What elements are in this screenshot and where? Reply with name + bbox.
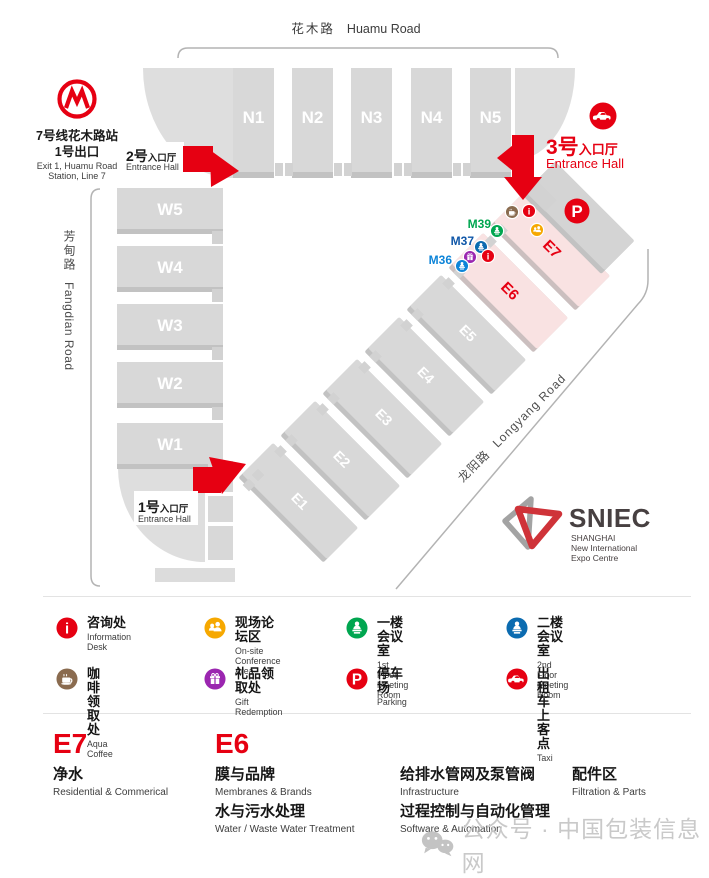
longyang-road-label: 龙阳路Longyang Road <box>454 370 568 484</box>
legend-item-parking: 停车场Parking <box>345 667 407 707</box>
legend-item-gift: 礼品领取处Gift Redemption <box>203 667 282 717</box>
section-e6-code: E6 <box>215 728 249 760</box>
legend-item-taxi: 出租车上客点Taxi <box>505 667 553 763</box>
metro-line2-cn: 1号出口 <box>55 144 99 159</box>
sniec-sub2: New International <box>571 543 637 553</box>
huamu-road-line <box>178 48 558 58</box>
section-e7-code: E7 <box>53 728 87 760</box>
parking-icon <box>345 667 369 691</box>
gift-icon <box>203 667 227 691</box>
gate-m37-label: M37 <box>451 234 475 248</box>
watermark-text: 公众号 · 中国包装信息网 <box>462 810 709 878</box>
conference-icon <box>203 616 227 640</box>
fangdian-road-line <box>91 189 100 586</box>
huamu-road-label: 花木路Huamu Road <box>291 21 420 36</box>
svg-text:N3: N3 <box>361 108 383 127</box>
taxi-icon <box>505 667 529 691</box>
gate-m36-label: M36 <box>429 253 453 267</box>
legend-cn: 出租车上客点 <box>537 667 553 751</box>
svg-text:W1: W1 <box>157 435 183 454</box>
metro-line1-en: Exit 1, Huamu Road <box>37 161 118 171</box>
svg-text:N1: N1 <box>243 108 265 127</box>
coffee-mini-icon <box>505 205 518 218</box>
fangdian-road-label: 芳甸路Fangdian Road <box>61 230 78 380</box>
entrance3-label-en: Entrance Hall <box>546 156 624 171</box>
legend-cn: 停车场 <box>377 667 407 695</box>
information-mini-icon <box>522 204 535 217</box>
svg-text:N2: N2 <box>302 108 324 127</box>
hall-w4: W4 <box>117 246 223 292</box>
legend-en: Aqua Coffee <box>87 739 113 759</box>
legend-item-information: 咨询处Information Desk <box>55 616 131 652</box>
category-cn: 膜与品牌 <box>215 763 312 784</box>
watermark: 公众号 · 中国包装信息网 <box>420 810 709 878</box>
legend-en: Taxi <box>537 753 553 763</box>
gate-m39-label: M39 <box>468 217 492 231</box>
entrance2-label-en: Entrance Hall <box>126 162 179 172</box>
fangdian-en: Fangdian Road <box>62 282 76 371</box>
hall-n1: N1 <box>233 68 274 178</box>
hall-n2: N2 <box>292 68 333 178</box>
sniec-sub3: Expo Centre <box>571 553 619 563</box>
category-en: Residential & Commerical <box>53 787 168 798</box>
category-cn: 净水 <box>53 763 168 784</box>
conference-mini-icon <box>530 223 543 236</box>
meeting-2f-icon <box>505 616 529 640</box>
svg-text:W5: W5 <box>157 200 183 219</box>
sniec-logo: SNIEC SHANGHAI New International Expo Ce… <box>505 499 651 563</box>
section-e6-item-2: 水与污水处理 Water / Waste Water Treatment <box>215 800 354 835</box>
section-infrastructure: 给排水管网及泵管阀 Infrastructure <box>400 763 535 798</box>
meeting-1f-icon <box>345 616 369 640</box>
fangdian-cn: 芳甸路 <box>62 230 76 272</box>
wechat-icon <box>420 828 456 860</box>
legend-cn: 礼品领取处 <box>235 667 282 695</box>
category-en: Water / Waste Water Treatment <box>215 824 354 835</box>
legend-cn: 一楼会议室 <box>377 616 408 658</box>
information-icon <box>55 616 79 640</box>
information-mini-icon-2 <box>481 249 494 262</box>
metro-station: 7号线花木路站 1号出口 Exit 1, Huamu Road Station,… <box>36 82 118 182</box>
divider-top <box>43 596 691 597</box>
hall-w2: W2 <box>117 362 223 408</box>
category-en: Membranes & Brands <box>215 787 312 798</box>
parking-letter: P <box>571 202 582 221</box>
metro-line1-cn: 7号线花木路站 <box>36 128 118 143</box>
entrance1-label-en: Entrance Hall <box>138 514 191 524</box>
legend-en: Information Desk <box>87 632 131 652</box>
venue-map: i P <box>0 0 709 600</box>
legend-cn: 二楼会议室 <box>537 616 568 658</box>
svg-text:N4: N4 <box>421 108 443 127</box>
taxi-badge <box>590 103 617 130</box>
hall-n3: N3 <box>351 68 392 178</box>
legend-en: Parking <box>377 697 407 707</box>
metro-line2-en: Station, Line 7 <box>48 171 106 181</box>
south-structure <box>155 568 235 582</box>
hall-w5: W5 <box>117 188 223 234</box>
svg-text:W2: W2 <box>157 374 183 393</box>
hall-n4: N4 <box>411 68 452 178</box>
divider-bottom <box>43 713 691 714</box>
coffee-icon <box>55 667 79 691</box>
legend-cn: 现场论坛区 <box>235 616 280 644</box>
gate-m36-icon <box>455 259 468 272</box>
svg-text:W3: W3 <box>157 316 183 335</box>
category-cn: 配件区 <box>572 763 646 784</box>
category-en: Filtration & Parts <box>572 787 646 798</box>
legend-en: Gift Redemption <box>235 697 282 717</box>
category-en: Infrastructure <box>400 787 535 798</box>
shanghai-metro-icon <box>60 82 95 117</box>
parking-badge: P <box>565 199 590 224</box>
legend-cn: 咖啡领取处 <box>87 667 113 737</box>
category-cn: 给排水管网及泵管阀 <box>400 763 535 784</box>
svg-text:N5: N5 <box>480 108 502 127</box>
sniec-name: SNIEC <box>569 503 651 533</box>
hall-w3: W3 <box>117 304 223 350</box>
category-cn: 水与污水处理 <box>215 800 354 821</box>
svg-text:W4: W4 <box>157 258 183 277</box>
hall-w1: W1 <box>117 423 223 469</box>
section-e6-item-1: 膜与品牌 Membranes & Brands <box>215 763 312 798</box>
section-e7-item: 净水 Residential & Commerical <box>53 763 168 798</box>
legend-cn: 咨询处 <box>87 616 131 630</box>
section-filtration: 配件区 Filtration & Parts <box>572 763 646 798</box>
gate-m39-icon <box>490 224 503 237</box>
sniec-sub1: SHANGHAI <box>571 533 615 543</box>
